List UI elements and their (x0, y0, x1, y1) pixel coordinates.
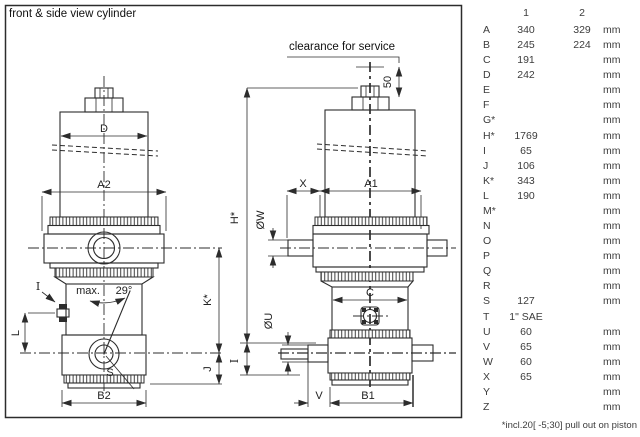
row-value-1: 65 (498, 341, 554, 353)
row-label: R (483, 280, 491, 292)
row-label: I (483, 145, 486, 157)
table-row: W60mm (470, 356, 637, 371)
dim-label-k: K* (202, 293, 214, 305)
row-unit: mm (603, 220, 621, 232)
dim-label-i-side: I (228, 359, 241, 363)
dim-label-i-front: I (36, 280, 40, 293)
row-unit: mm (603, 371, 621, 383)
dim-label-u: ØU (263, 313, 275, 330)
table-header: 1 2 (470, 7, 637, 21)
front-view: D A2 max. 29° (10, 76, 222, 407)
table-row: Emm (470, 84, 637, 99)
row-unit: mm (603, 39, 621, 51)
row-value-1: 65 (498, 371, 554, 383)
table-row: S127mm (470, 295, 637, 310)
row-unit: mm (603, 145, 621, 157)
row-unit: mm (603, 280, 621, 292)
dim-label-b2: B2 (97, 390, 110, 402)
table-row: A340329mm (470, 24, 637, 39)
row-label: W (483, 356, 493, 368)
table-row: U60mm (470, 326, 637, 341)
clearance-note: clearance for service (289, 41, 395, 53)
table-row: Qmm (470, 265, 637, 280)
table-row: Ymm (470, 386, 637, 401)
drawing-frame: front & side view cylinder (6, 6, 462, 418)
table-row: Fmm (470, 99, 637, 114)
row-value-1: 340 (498, 24, 554, 36)
table-row: C191mm (470, 54, 637, 69)
row-label: E (483, 84, 490, 96)
row-label: K* (483, 175, 494, 187)
row-label: M* (483, 205, 496, 217)
row-unit: mm (603, 84, 621, 96)
row-unit: mm (603, 356, 621, 368)
angle-note-max: max. (76, 285, 100, 297)
row-value-2: 224 (556, 39, 608, 51)
dimension-table: 1 2 A340329mmB245224mmC191mmD242mmEmmFmm… (470, 0, 637, 418)
row-label: Q (483, 265, 491, 277)
dim-label-h: H* (229, 211, 241, 224)
dim-label-50: 50 (382, 76, 394, 88)
row-value-1: 1769 (498, 130, 554, 142)
row-label: A (483, 24, 490, 36)
drawing-title: front & side view cylinder (9, 8, 136, 20)
row-label: T (483, 311, 489, 323)
row-value-1: 343 (498, 175, 554, 187)
table-row: I65mm (470, 145, 637, 160)
row-value-1: 60 (498, 356, 554, 368)
table-row: Pmm (470, 250, 637, 265)
row-value-2: 329 (556, 24, 608, 36)
table-row: M*mm (470, 205, 637, 220)
row-value-1: 106 (498, 160, 554, 172)
row-unit: mm (603, 295, 621, 307)
column-header-1: 1 (498, 7, 554, 19)
row-unit: mm (603, 250, 621, 262)
row-label: J (483, 160, 488, 172)
table-row: V65mm (470, 341, 637, 356)
row-unit: mm (603, 341, 621, 353)
row-value-1: 60 (498, 326, 554, 338)
side-view: clearance for service 50 H* I X A (228, 41, 456, 407)
row-label: V (483, 341, 490, 353)
row-value-1: 191 (498, 54, 554, 66)
table-row: Zmm (470, 401, 637, 416)
row-unit: mm (603, 401, 621, 413)
row-unit: mm (603, 114, 621, 126)
dim-label-x: X (299, 178, 307, 190)
row-unit: mm (603, 175, 621, 187)
page: front & side view cylinder D A2 (0, 0, 640, 437)
row-unit: mm (603, 69, 621, 81)
row-value-1: 242 (498, 69, 554, 81)
column-header-2: 2 (556, 7, 608, 19)
table-row: T1" SAE (470, 311, 637, 326)
row-unit: mm (603, 386, 621, 398)
row-label: O (483, 235, 491, 247)
row-unit: mm (603, 235, 621, 247)
dim-label-a2: A2 (97, 179, 110, 191)
table-row: L190mm (470, 190, 637, 205)
table-row: H*1769mm (470, 130, 637, 145)
row-label: Y (483, 386, 490, 398)
row-unit: mm (603, 326, 621, 338)
row-unit: mm (603, 24, 621, 36)
dim-label-s: S (106, 367, 113, 379)
row-label: U (483, 326, 491, 338)
row-label: P (483, 250, 490, 262)
row-label: N (483, 220, 491, 232)
row-label: H* (483, 130, 495, 142)
dim-label-v: V (315, 390, 323, 402)
table-row: D242mm (470, 69, 637, 84)
row-label: B (483, 39, 490, 51)
row-label: F (483, 99, 489, 111)
table-row: J106mm (470, 160, 637, 175)
row-label: Z (483, 401, 489, 413)
row-unit: mm (603, 190, 621, 202)
dim-label-b1: B1 (361, 390, 374, 402)
row-value-1: 190 (498, 190, 554, 202)
row-label: X (483, 371, 490, 383)
row-value-1: 127 (498, 295, 554, 307)
table-row: Nmm (470, 220, 637, 235)
table-footnote: *incl.20[ -5;30] pull out on piston (468, 420, 637, 431)
row-value-1: 1" SAE (498, 311, 554, 323)
row-unit: mm (603, 54, 621, 66)
dim-label-l: L (10, 330, 22, 336)
row-unit: mm (603, 99, 621, 111)
row-unit: mm (603, 265, 621, 277)
row-label: G* (483, 114, 495, 126)
table-row: B245224mm (470, 39, 637, 54)
dim-label-d: D (100, 123, 108, 135)
row-unit: mm (603, 160, 621, 172)
row-label: C (483, 54, 491, 66)
row-label: L (483, 190, 489, 202)
table-row: G*mm (470, 114, 637, 129)
dim-label-a1: A1 (364, 178, 377, 190)
table-row: Omm (470, 235, 637, 250)
row-value-1: 245 (498, 39, 554, 51)
row-label: D (483, 69, 491, 81)
row-unit: mm (603, 205, 621, 217)
row-value-1: 65 (498, 145, 554, 157)
table-row: Rmm (470, 280, 637, 295)
dim-label-j: J (202, 366, 214, 372)
dim-label-w: ØW (255, 210, 267, 230)
row-unit: mm (603, 130, 621, 142)
dim-label-c: C (366, 287, 374, 299)
row-label: S (483, 295, 490, 307)
table-row: X65mm (470, 371, 637, 386)
table-row: K*343mm (470, 175, 637, 190)
